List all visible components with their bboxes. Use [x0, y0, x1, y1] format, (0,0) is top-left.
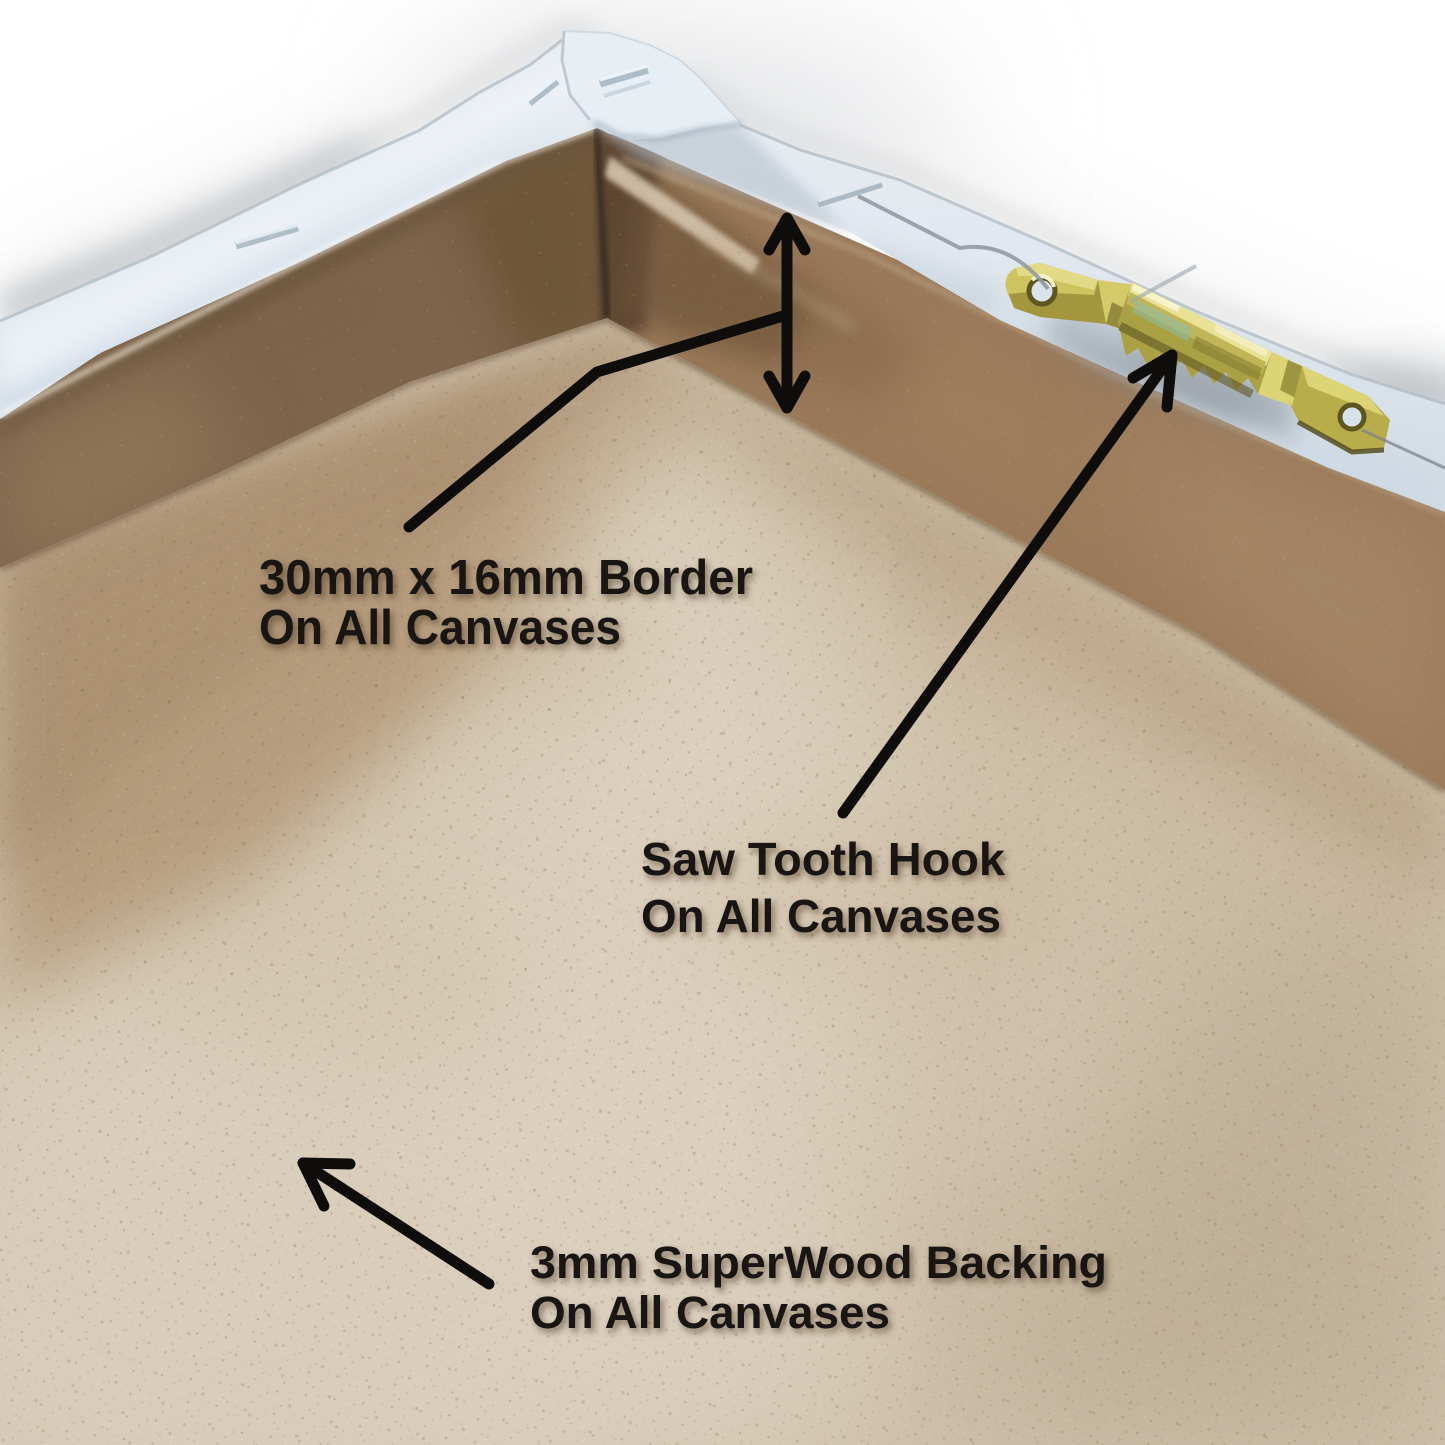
svg-text:On All Canvases: On All Canvases	[530, 1287, 890, 1338]
svg-text:On All Canvases: On All Canvases	[641, 890, 1001, 942]
svg-text:30mm x 16mm Border: 30mm x 16mm Border	[259, 551, 753, 605]
svg-text:3mm SuperWood Backing: 3mm SuperWood Backing	[530, 1237, 1107, 1288]
svg-text:Saw Tooth Hook: Saw Tooth Hook	[641, 833, 1005, 885]
svg-text:On All Canvases: On All Canvases	[259, 601, 621, 655]
